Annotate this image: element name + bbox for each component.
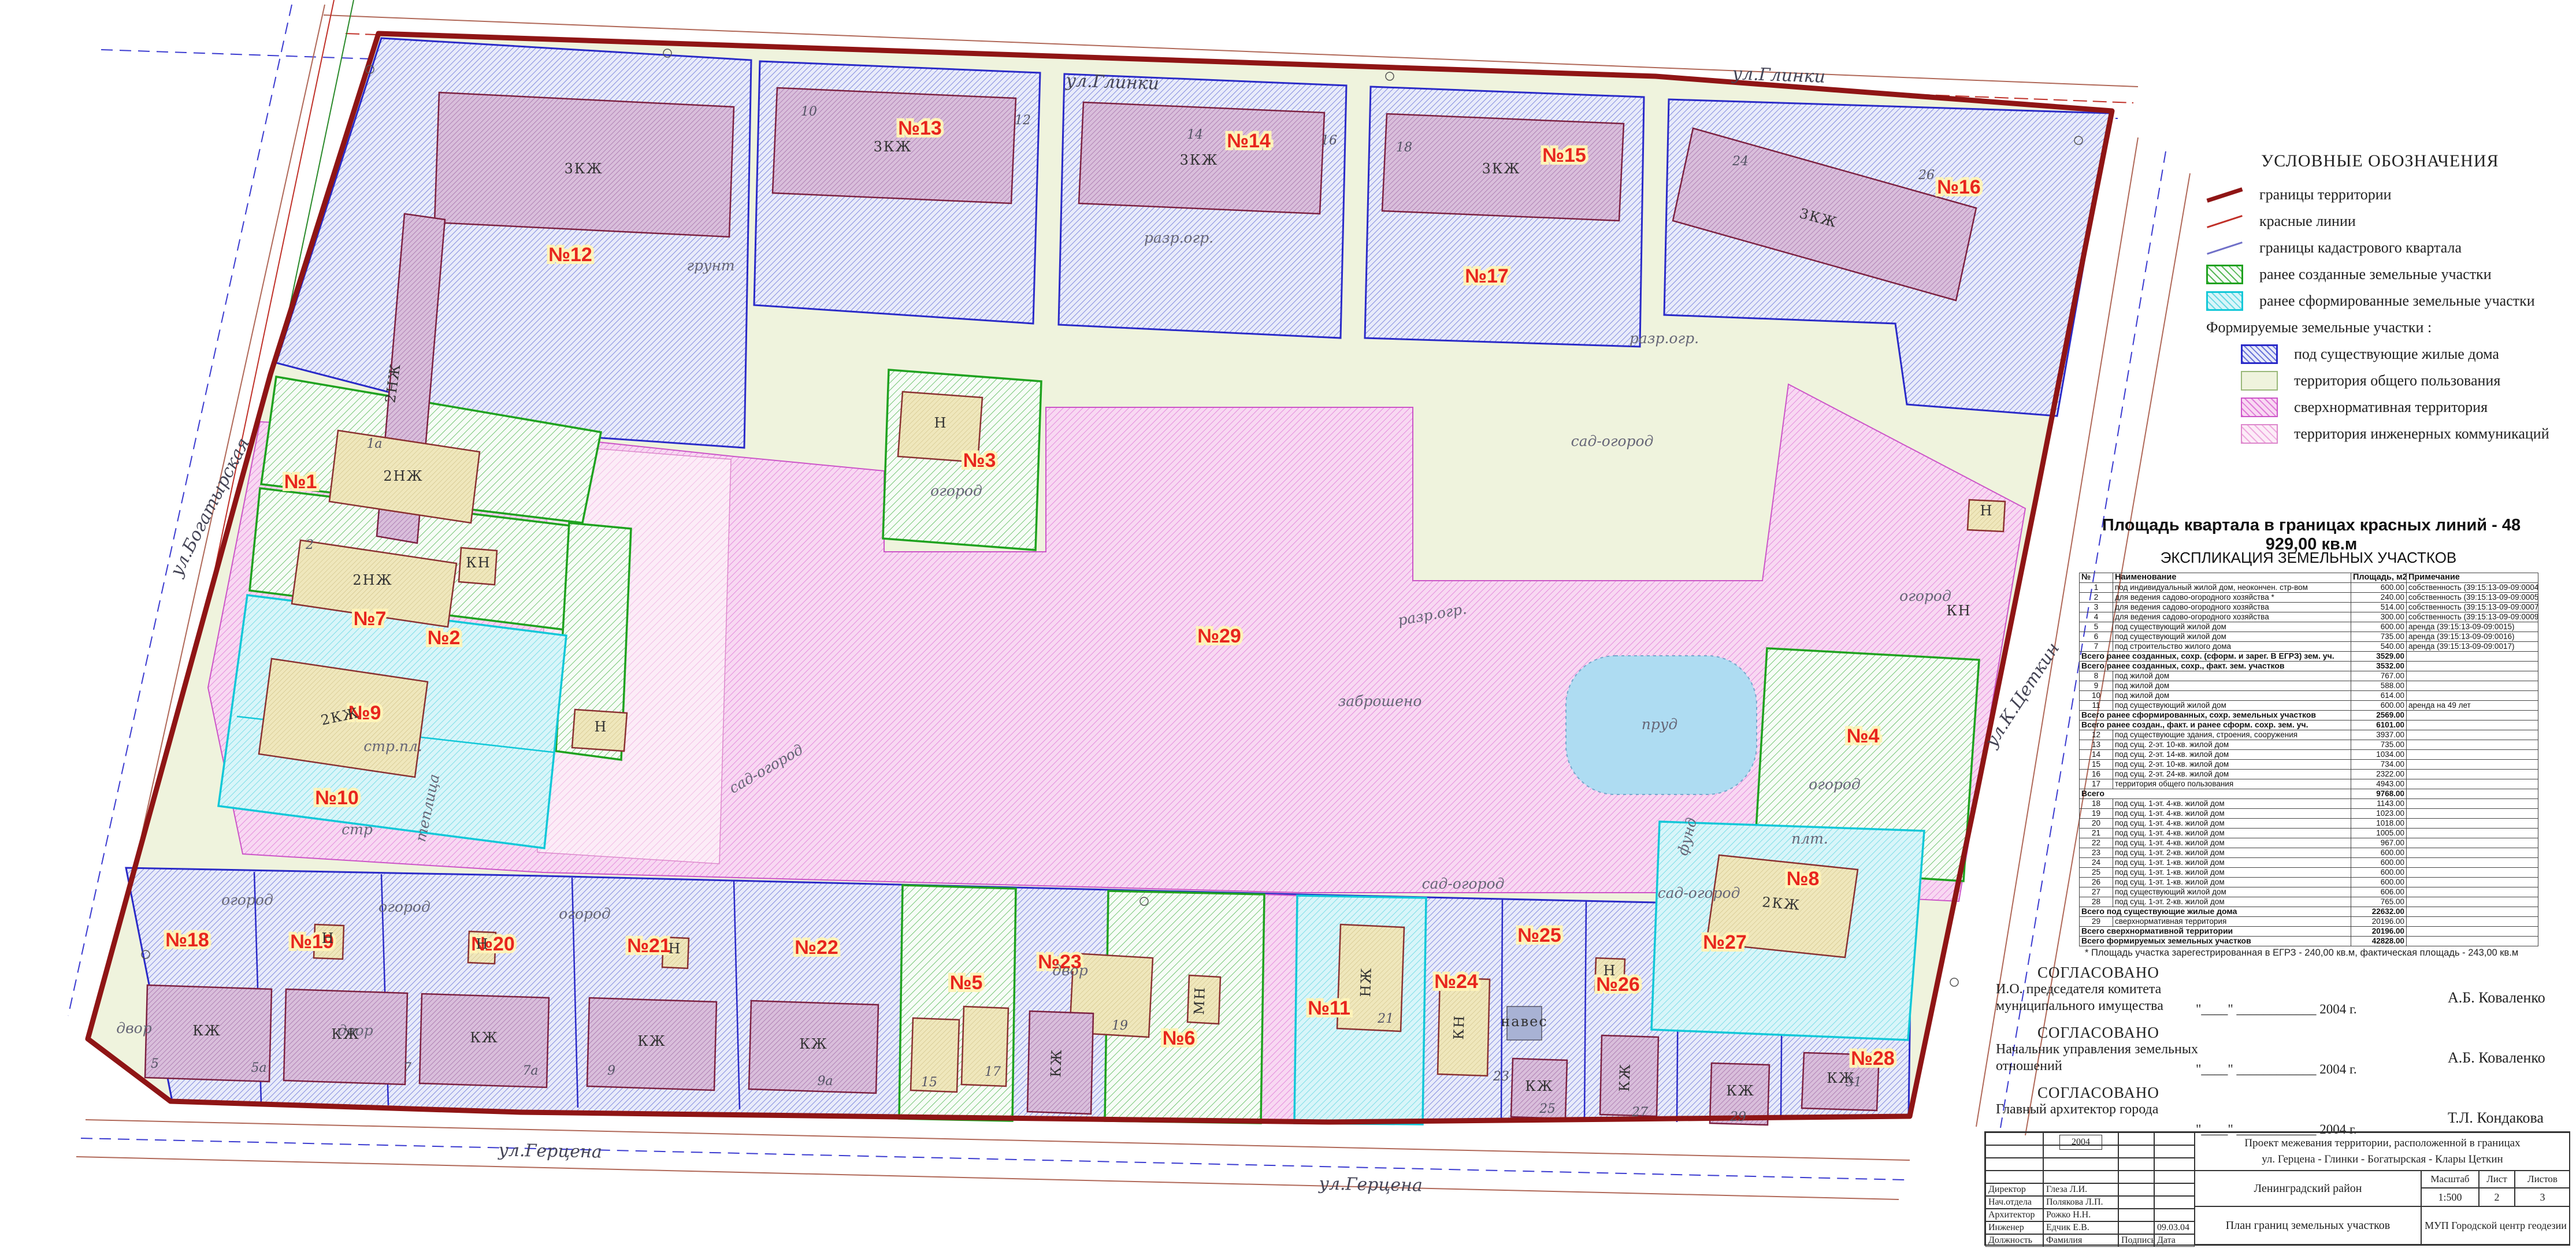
table-cell-tn: 20	[2080, 819, 2113, 829]
map-label-num: 21	[1377, 1012, 1394, 1026]
year-cell: 2004	[2059, 1135, 2102, 1150]
table-cell-tnote	[2407, 887, 2538, 897]
table-cell-tn: 21	[2080, 829, 2113, 838]
map-label-area: сад-огород	[1658, 885, 1740, 901]
table-cell-tnote	[2407, 819, 2538, 829]
parcel-label-25: №25	[1517, 924, 1561, 946]
explication: ЭКСПЛИКАЦИЯ ЗЕМЕЛЬНЫХ УЧАСТКОВ № Наимено…	[2079, 549, 2538, 946]
legend-item: территория общего пользования	[2206, 367, 2576, 394]
table-cell-tname: под существующий жилой дом	[2113, 622, 2351, 632]
staff-row	[1985, 1171, 2195, 1183]
table-cell-tname: для ведения садово-огородного хозяйства …	[2113, 593, 2351, 603]
staff-row: Нач.отделаПолякова Л.П.	[1985, 1196, 2195, 1209]
map-label-num: 12	[1015, 113, 1031, 128]
map-label-num: 1а	[366, 437, 382, 451]
table-cell-tn: 28	[2080, 897, 2113, 907]
map-label-bld: 2КЖ	[1761, 894, 1801, 913]
map-label-num: 9	[607, 1064, 615, 1078]
table-row: 21под сущ. 1-эт. 4-кв. жилой дом1005.00	[2080, 829, 2538, 838]
table-cell-tnote	[2407, 927, 2538, 937]
table-row: Всего9768.00	[2080, 789, 2538, 799]
table-cell-tn: 18	[2080, 799, 2113, 809]
table-row: 8под жилой дом767.00	[2080, 671, 2538, 681]
table-cell-tarea: 600.00	[2351, 848, 2407, 858]
parcel-label-16: №16	[1937, 176, 1981, 198]
approval-label: СОГЛАСОВАНО	[2037, 1024, 2159, 1042]
table-cell-tname: под сущ. 2-эт. 24-кв. жилой дом	[2113, 770, 2351, 779]
table-row: 22под сущ. 1-эт. 4-кв. жилой дом967.00	[2080, 838, 2538, 848]
staff-cell-sign	[2118, 1209, 2154, 1221]
map-label-num: 29	[1729, 1110, 1746, 1124]
legend-item: красные линии	[2206, 208, 2576, 235]
staff-cell-sign	[2118, 1158, 2154, 1171]
table-cell-tarea: 735.00	[2351, 740, 2407, 750]
zone-gap-pink	[1261, 894, 1297, 1123]
table-row: 2для ведения садово-огородного хозяйства…	[2080, 593, 2538, 603]
table-cell-tnote: аренда (39:15:13-09-09:0015)	[2407, 622, 2538, 632]
map-label-area: сад-огород	[1571, 433, 1654, 450]
table-cell-tarea: 2322.00	[2351, 770, 2407, 779]
table-row: 12под существующие здания, строения, соо…	[2080, 730, 2538, 740]
district-cell: Ленинградский район	[2195, 1171, 2421, 1206]
staff-cell-date	[2154, 1145, 2195, 1158]
table-cell-tarea: 3937.00	[2351, 730, 2407, 740]
legend-item: под существующие жилые дома	[2206, 341, 2576, 367]
map-label-bld: КН	[1450, 1014, 1468, 1039]
approval-name: А.Б. Коваленко	[2448, 1049, 2545, 1067]
table-row: 15под сущ. 2-эт. 10-кв. жилой дом734.00	[2080, 760, 2538, 770]
parcel-label-7: №7	[354, 608, 387, 630]
sw-blue-swatch-icon	[2241, 344, 2278, 364]
table-cell-tname: под жилой дом	[2113, 691, 2351, 701]
sw-boundary-swatch-icon	[2206, 187, 2243, 202]
map-label-bld: КН	[1946, 603, 1972, 619]
staff-cell-sign	[2118, 1145, 2154, 1158]
staff-cell-name: Полякова Л.П.	[2043, 1196, 2118, 1209]
staff-row	[1985, 1158, 2195, 1171]
table-cell-tn: 9	[2080, 681, 2113, 691]
table-cell-tnote: собственность (39:15:13-09-09:0007)	[2407, 603, 2538, 612]
table-cell-tname: Всего ранее создан., факт. и ранее сформ…	[2080, 720, 2351, 730]
map-label-area: двор	[116, 1020, 151, 1037]
map-label-bld: КЖ	[1048, 1048, 1065, 1077]
footnote: * Площадь участка зарегестрированная в Е…	[2085, 948, 2570, 959]
parcel-label-10: №10	[315, 787, 359, 809]
table-cell-tname: под существующие здания, строения, соору…	[2113, 730, 2351, 740]
table-cell-tnote	[2407, 740, 2538, 750]
table-cell-tname: сверхнормативная территория	[2113, 917, 2351, 927]
map-label-area: стр.пл.	[363, 738, 422, 755]
table-cell-tarea: 1018.00	[2351, 819, 2407, 829]
staff-cell-role: Нач.отдела	[1985, 1196, 2043, 1209]
table-cell-tnote	[2407, 711, 2538, 720]
table-cell-tname: под сущ. 1-эт. 1-кв. жилой дом	[2113, 858, 2351, 868]
approvals: СОГЛАСОВАНОИ.О. председателя комитета му…	[1992, 964, 2576, 1137]
table-cell-tn: 23	[2080, 848, 2113, 858]
sw-cyan-swatch-icon	[2206, 291, 2243, 311]
col-area: Площадь, м2	[2351, 573, 2407, 583]
table-cell-tname: под сущ. 1-эт. 2-кв. жилой дом	[2113, 897, 2351, 907]
sheets-label: Листов	[2515, 1171, 2570, 1188]
table-cell-tn: 15	[2080, 760, 2113, 770]
table-cell-tarea: 1023.00	[2351, 809, 2407, 819]
staff-cell-sign	[2118, 1132, 2154, 1145]
map-label-num: 5	[151, 1057, 159, 1071]
legend-item: границы кадастрового квартала	[2206, 235, 2576, 261]
staff-cell-date	[2154, 1158, 2195, 1171]
table-cell-tarea: 20196.00	[2351, 927, 2407, 937]
approval-entry: СОГЛАСОВАНОИ.О. председателя комитета му…	[1992, 964, 2576, 1028]
map-label-bld: НЖ	[1357, 967, 1375, 997]
staff-cell-name	[2043, 1171, 2118, 1183]
approval-role: Начальник управления земельных отношений	[1996, 1041, 2202, 1075]
table-row: Всего сверхнормативной территории20196.0…	[2080, 927, 2538, 937]
table-cell-tarea: 735.00	[2351, 632, 2407, 642]
table-cell-tarea: 614.00	[2351, 691, 2407, 701]
staff-cell-name: Рожко Н.Н.	[2043, 1209, 2118, 1221]
table-cell-tnote	[2407, 671, 2538, 681]
approval-label: СОГЛАСОВАНО	[2037, 1084, 2159, 1102]
legend-item: Формируемые земельные участки :	[2206, 314, 2576, 341]
table-cell-tarea: 967.00	[2351, 838, 2407, 848]
legend-title: УСЛОВНЫЕ ОБОЗНАЧЕНИЯ	[2261, 151, 2576, 171]
staff-cell-name: Едчик Е.В.	[2043, 1221, 2118, 1234]
map-label-num: 9а	[817, 1074, 833, 1089]
map-label-bld: Н	[669, 941, 682, 957]
table-cell-tnote	[2407, 829, 2538, 838]
map-label-area: огород	[1899, 588, 1951, 604]
table-cell-tname: территория общего пользования	[2113, 779, 2351, 789]
table-cell-tname: под сущ. 1-эт. 2-кв. жилой дом	[2113, 848, 2351, 858]
sheets-value: 3	[2515, 1188, 2570, 1206]
table-cell-tarea: 240.00	[2351, 593, 2407, 603]
table-row: Всего под существующие жилые дома22632.0…	[2080, 907, 2538, 917]
table-row: 1под индивидуальный жилой дом, неокончен…	[2080, 583, 2538, 593]
project-line2: ул. Герцена - Глинки - Богатырская - Кла…	[2262, 1152, 2503, 1168]
table-cell-tn: 16	[2080, 770, 2113, 779]
table-cell-tnote	[2407, 897, 2538, 907]
staff-cell-name: Фамилия	[2043, 1234, 2118, 1247]
table-cell-tn: 8	[2080, 671, 2113, 681]
map-label-bld: 3КЖ	[1180, 152, 1219, 168]
table-cell-tnote	[2407, 779, 2538, 789]
parcel-label-21: №21	[627, 935, 671, 957]
table-cell-tarea: 1143.00	[2351, 799, 2407, 809]
table-cell-tname: под сущ. 1-эт. 4-кв. жилой дом	[2113, 799, 2351, 809]
table-cell-tname: под сущ. 2-эт. 10-кв. жилой дом	[2113, 740, 2351, 750]
table-cell-tnote	[2407, 917, 2538, 927]
map-label-street: ул.Герцена	[1317, 1173, 1423, 1195]
table-cell-tnote	[2407, 770, 2538, 779]
parcel-label-14: №14	[1227, 130, 1271, 152]
table-row: 23под сущ. 1-эт. 2-кв. жилой дом600.00	[2080, 848, 2538, 858]
staff-row: ДолжностьФамилияПодписьДата	[1985, 1234, 2195, 1247]
parcel-label-4: №4	[1847, 725, 1880, 747]
parcel-label-24: №24	[1434, 971, 1478, 993]
table-cell-tn: 19	[2080, 809, 2113, 819]
title-block: ДиректорГлеза Л.И.Нач.отделаПолякова Л.П…	[1984, 1131, 2570, 1246]
table-row: 9под жилой дом588.00	[2080, 681, 2538, 691]
map-label-num: 19	[1112, 1019, 1128, 1033]
table-cell-tarea: 606.00	[2351, 887, 2407, 897]
table-cell-tname: для ведения садово-огородного хозяйства	[2113, 603, 2351, 612]
table-cell-tnote	[2407, 760, 2538, 770]
table-cell-tnote: собственность (39:15:13-09-09:0005)	[2407, 593, 2538, 603]
staff-cell-sign	[2118, 1171, 2154, 1183]
legend-item-label: границы кадастрового квартала	[2259, 239, 2462, 257]
table-cell-tname: Всего формируемых земельных участков	[2080, 937, 2351, 946]
parcel-label-12: №12	[548, 244, 592, 266]
map-label-street: ул.Герцена	[497, 1140, 602, 1162]
map-label-num: 15	[921, 1075, 937, 1090]
map-label-area: огород	[930, 482, 982, 499]
table-cell-tarea: 734.00	[2351, 760, 2407, 770]
sw-lpink-swatch-icon	[2241, 424, 2278, 444]
legend: УСЛОВНЫЕ ОБОЗНАЧЕНИЯ границы территориик…	[2206, 151, 2576, 447]
staff-cell-role: Архитектор	[1985, 1209, 2043, 1221]
map-label-bld: КЖ	[470, 1030, 499, 1046]
staff-cell-sign	[2118, 1183, 2154, 1196]
sw-green-swatch-icon	[2206, 265, 2243, 284]
table-cell-tarea: 22632.00	[2351, 907, 2407, 917]
table-cell-tname: под сущ. 1-эт. 4-кв. жилой дом	[2113, 829, 2351, 838]
col-name: Наименование	[2113, 573, 2351, 583]
approval-role: Главный архитектор города	[1996, 1101, 2202, 1118]
sheet-value: 2	[2479, 1188, 2515, 1206]
map-label-area: плт.	[1791, 830, 1828, 847]
scale-value: 1:500	[2421, 1188, 2479, 1206]
table-cell-tarea: 600.00	[2351, 858, 2407, 868]
parcel-label-17: №17	[1465, 265, 1509, 287]
table-cell-tarea: 42828.00	[2351, 937, 2407, 946]
map-label-area: сад-огород	[1422, 875, 1505, 892]
map-label-num: 24	[1732, 154, 1749, 169]
table-cell-tnote	[2407, 750, 2538, 760]
staff-cell-name	[2043, 1158, 2118, 1171]
table-cell-tarea: 300.00	[2351, 612, 2407, 622]
table-row: 13под сущ. 2-эт. 10-кв. жилой дом735.00	[2080, 740, 2538, 750]
table-cell-tn: 13	[2080, 740, 2113, 750]
table-cell-tnote	[2407, 662, 2538, 671]
table-row: 5под существующий жилой дом600.00аренда …	[2080, 622, 2538, 632]
table-row: 17территория общего пользования4943.00	[2080, 779, 2538, 789]
staff-row: ИнженерЕдчик Е.В.09.03.04	[1985, 1221, 2195, 1234]
table-cell-tname: под сущ. 2-эт. 10-кв. жилой дом	[2113, 760, 2351, 770]
map-label-num: 5а	[251, 1061, 266, 1075]
staff-cell-sign: Подпись	[2118, 1234, 2154, 1247]
map-label-num: 17	[985, 1065, 1001, 1079]
parcel-label-18: №18	[165, 929, 209, 951]
parcel-label-13: №13	[898, 117, 942, 139]
map-label-bld: КЖ	[1616, 1063, 1634, 1091]
table-cell-tarea: 1034.00	[2351, 750, 2407, 760]
staff-cell-date	[2154, 1196, 2195, 1209]
table-cell-tn: 12	[2080, 730, 2113, 740]
col-number: №	[2080, 573, 2113, 583]
table-cell-tnote	[2407, 809, 2538, 819]
parcel-label-11: №11	[1308, 997, 1350, 1019]
table-row: 14под сущ. 2-эт. 14-кв. жилой дом1034.00	[2080, 750, 2538, 760]
map-label-num: 7а	[522, 1064, 538, 1078]
table-cell-tnote	[2407, 838, 2538, 848]
table-cell-tname: Всего ранее созданных, сохр., факт. зем.…	[2080, 662, 2351, 671]
map-label-bld: 2НЖ	[383, 468, 423, 484]
map-label-area: огород	[1809, 776, 1861, 793]
staff-cell-role: Инженер	[1985, 1221, 2043, 1234]
map-label-street: ул.Глинки	[1731, 64, 1825, 87]
table-cell-tnote	[2407, 789, 2538, 799]
table-cell-tarea: 4943.00	[2351, 779, 2407, 789]
table-cell-tname: под сущ. 1-эт. 4-кв. жилой дом	[2113, 809, 2351, 819]
table-cell-tn: 6	[2080, 632, 2113, 642]
approval-entry: СОГЛАСОВАНОНачальник управления земельны…	[1992, 1024, 2576, 1089]
table-row: 6под существующий жилой дом735.00аренда …	[2080, 632, 2538, 642]
table-cell-tn: 5	[2080, 622, 2113, 632]
table-cell-tarea: 588.00	[2351, 681, 2407, 691]
approval-name: Т.Л. Кондакова	[2448, 1109, 2544, 1127]
map-label-bld: 3КЖ	[565, 161, 603, 177]
table-row: Всего ранее созданных, сохр. (сформ. и з…	[2080, 652, 2538, 662]
parcel-label-3: №3	[963, 450, 996, 471]
map-label-bld: 2НЖ	[352, 572, 392, 588]
table-cell-tarea: 600.00	[2351, 622, 2407, 632]
map-label-area: огород	[559, 905, 611, 922]
map-label-bld: Н	[1980, 503, 1994, 519]
approval-role: И.О. председателя комитета муниципальног…	[1996, 981, 2202, 1015]
table-cell-tarea: 767.00	[2351, 671, 2407, 681]
map-label-num: 31	[1846, 1075, 1862, 1090]
map-label-area: огород	[378, 898, 430, 915]
map-label-num: 18	[1396, 140, 1412, 155]
table-cell-tn: 7	[2080, 642, 2113, 652]
staff-cell-role: Директор	[1985, 1183, 2043, 1196]
table-cell-tname: под существующий жилой дом	[2113, 632, 2351, 642]
legend-item-label: ранее сформированные земельные участки	[2259, 292, 2535, 310]
table-cell-tn: 11	[2080, 701, 2113, 711]
table-cell-tn: 29	[2080, 917, 2113, 927]
table-cell-tnote	[2407, 720, 2538, 730]
table-row: 18под сущ. 1-эт. 4-кв. жилой дом1143.00	[2080, 799, 2538, 809]
map-label-bld: 3КЖ	[1482, 161, 1521, 177]
col-note: Примечание	[2407, 573, 2538, 583]
sw-magenta-swatch-icon	[2241, 398, 2278, 417]
table-row: 16под сущ. 2-эт. 24-кв. жилой дом2322.00	[2080, 770, 2538, 779]
parcel-label-15: №15	[1542, 144, 1586, 166]
table-cell-tarea: 3532.00	[2351, 662, 2407, 671]
staff-row: АрхитекторРожко Н.Н.	[1985, 1209, 2195, 1221]
map-label-bld: Н	[934, 415, 948, 431]
table-cell-tarea: 540.00	[2351, 642, 2407, 652]
map-label-area: разр.огр.	[1630, 330, 1699, 347]
table-cell-tnote	[2407, 907, 2538, 917]
legend-item-label: границы территории	[2259, 186, 2392, 203]
map-label-bld: Н	[595, 719, 608, 735]
map-label-area: огород	[221, 892, 273, 908]
table-cell-tname: под существующий жилой дом	[2113, 701, 2351, 711]
parcel-label-28: №28	[1851, 1048, 1895, 1069]
staff-cell-role: Должность	[1985, 1234, 2043, 1247]
table-cell-tn: 1	[2080, 583, 2113, 593]
table-cell-tnote	[2407, 848, 2538, 858]
table-cell-tarea: 765.00	[2351, 897, 2407, 907]
doc-title-cell: План границ земельных участков	[2195, 1206, 2421, 1245]
table-row: 25под сущ. 1-эт. 1-кв. жилой дом600.00	[2080, 868, 2538, 878]
project-line1: Проект межевания территории, расположенн…	[2244, 1135, 2520, 1152]
table-cell-tarea: 600.00	[2351, 878, 2407, 887]
staff-cell-role	[1985, 1158, 2043, 1171]
table-cell-tnote: аренда на 49 лет	[2407, 701, 2538, 711]
approval-label: СОГЛАСОВАНО	[2037, 964, 2159, 982]
table-cell-tnote	[2407, 858, 2538, 868]
table-cell-tname: под сущ. 1-эт. 1-кв. жилой дом	[2113, 878, 2351, 887]
map-label-num: 14	[1187, 128, 1203, 142]
table-cell-tn: 10	[2080, 691, 2113, 701]
table-cell-tn: 27	[2080, 887, 2113, 897]
table-row: 10под жилой дом614.00	[2080, 691, 2538, 701]
map-label-area: двор	[1052, 962, 1087, 979]
table-cell-tarea: 20196.00	[2351, 917, 2407, 927]
parcel-label-2: №2	[428, 627, 461, 649]
map-label-bld: КЖ	[1726, 1083, 1755, 1099]
table-cell-tarea: 600.00	[2351, 868, 2407, 878]
parcel-label-27: №27	[1703, 931, 1747, 953]
map-label-num: 2	[305, 538, 314, 552]
staff-cell-date	[2154, 1171, 2195, 1183]
parcel-label-26: №26	[1596, 974, 1640, 996]
table-cell-tname: под жилой дом	[2113, 681, 2351, 691]
project-title-cell: Проект межевания территории, расположенн…	[2195, 1132, 2570, 1171]
legend-item-label: под существующие жилые дома	[2294, 346, 2499, 363]
organization-cell: МУП Городской центр геодезии	[2421, 1206, 2570, 1245]
table-cell-tname: под сущ. 1-эт. 4-кв. жилой дом	[2113, 838, 2351, 848]
table-cell-tn: 17	[2080, 779, 2113, 789]
table-cell-tarea: 3529.00	[2351, 652, 2407, 662]
table-row: 7под строительство жилого дома540.00арен…	[2080, 642, 2538, 652]
table-cell-tname: Всего ранее созданных, сохр. (сформ. и з…	[2080, 652, 2351, 662]
table-cell-tn: 26	[2080, 878, 2113, 887]
parcel-label-1: №1	[284, 471, 317, 493]
table-row: Всего формируемых земельных участков4282…	[2080, 937, 2538, 946]
table-cell-tnote	[2407, 730, 2538, 740]
legend-item-label: красные линии	[2259, 213, 2356, 230]
table-cell-tname: Всего сверхнормативной территории	[2080, 927, 2351, 937]
map-label-num: 7	[403, 1061, 411, 1075]
legend-item-label: территория общего пользования	[2294, 372, 2500, 389]
table-cell-tnote: собственность (39:15:13-09-09:0004)	[2407, 583, 2538, 593]
map-label-area: заброшено	[1338, 693, 1422, 710]
table-row: 27под существующий жилой дом606.00	[2080, 887, 2538, 897]
map-label-num: 25	[1539, 1102, 1556, 1116]
table-row: Всего ранее созданных, сохр., факт. зем.…	[2080, 662, 2538, 671]
table-cell-tn: 4	[2080, 612, 2113, 622]
legend-item: территория инженерных коммуникаций	[2206, 421, 2576, 447]
table-row: 26под сущ. 1-эт. 1-кв. жилой дом600.00	[2080, 878, 2538, 887]
map-label-num: 27	[1631, 1105, 1648, 1120]
map-label-num: 23	[1493, 1069, 1509, 1084]
approval-date: "____" ____________ 2004 г.	[2196, 1002, 2386, 1017]
map-label-bld: навес	[1501, 1013, 1547, 1030]
map-label-bld: 3КЖ	[874, 139, 912, 155]
explication-table: № Наименование Площадь, м2 Примечание 1п…	[2079, 573, 2538, 946]
parcel-label-8: №8	[1787, 868, 1820, 890]
legend-item-label: ранее созданные земельные участки	[2259, 266, 2492, 283]
legend-item-label: территория инженерных коммуникаций	[2294, 425, 2549, 443]
table-cell-tname: Всего ранее сформированных, сохр. земель…	[2080, 711, 2351, 720]
table-row: Всего ранее сформированных, сохр. земель…	[2080, 711, 2538, 720]
table-cell-tname: под жилой дом	[2113, 671, 2351, 681]
table-cell-tname: под сущ. 1-эт. 1-кв. жилой дом	[2113, 868, 2351, 878]
table-row: 4для ведения садово-огородного хозяйства…	[2080, 612, 2538, 622]
